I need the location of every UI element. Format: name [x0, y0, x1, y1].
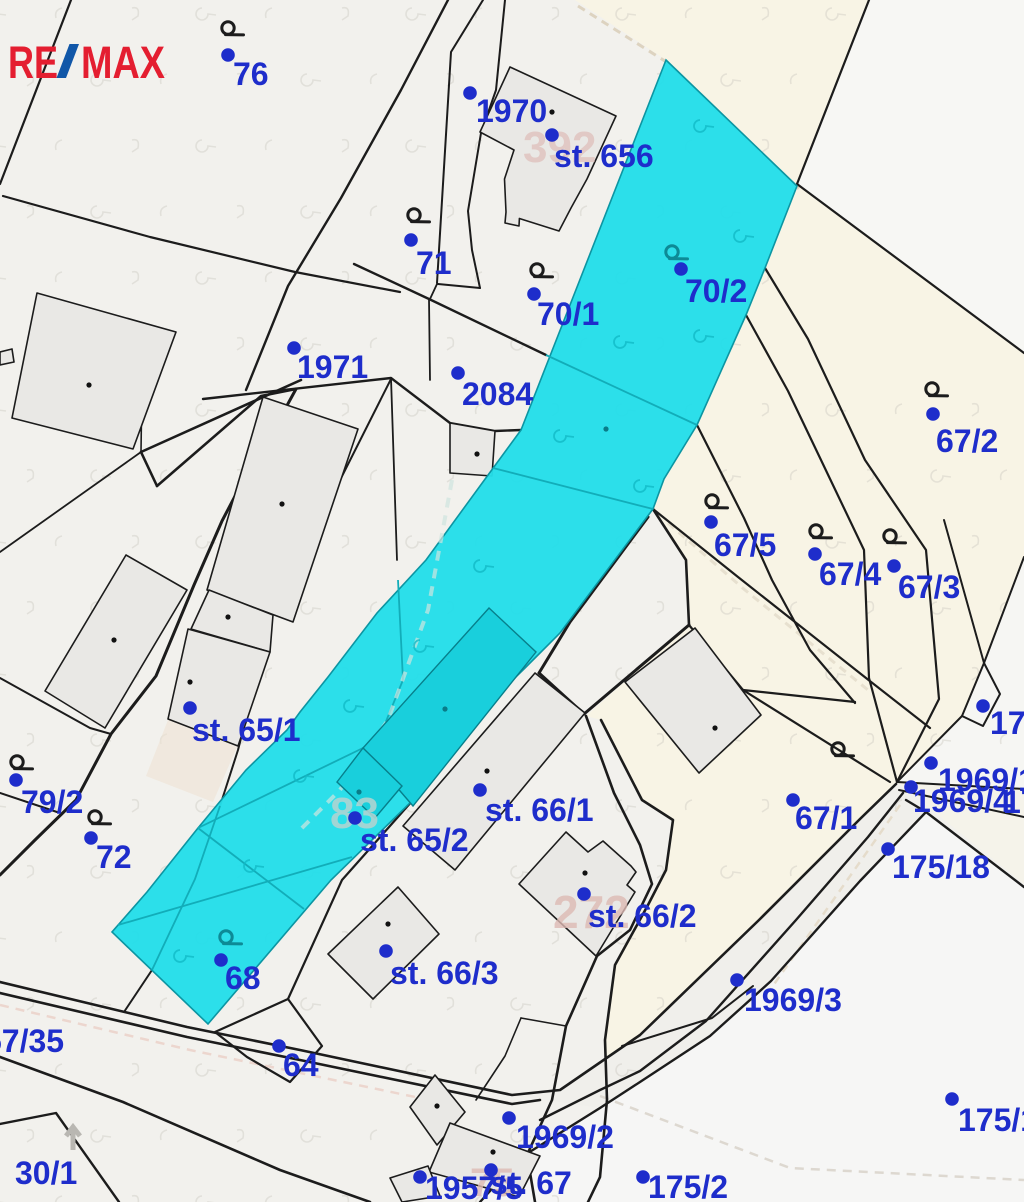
svg-text:1969/4: 1969/4 — [913, 783, 1011, 819]
svg-text:RE: RE — [8, 37, 58, 88]
svg-text:175/1: 175/1 — [958, 1102, 1024, 1138]
svg-text:70/1: 70/1 — [537, 296, 599, 332]
svg-text:64: 64 — [283, 1047, 319, 1083]
svg-text:1971: 1971 — [297, 349, 368, 385]
svg-text:st. 656: st. 656 — [554, 138, 654, 174]
svg-text:175/2: 175/2 — [648, 1169, 728, 1202]
svg-text:st. 66/3: st. 66/3 — [390, 955, 499, 991]
svg-text:67/2: 67/2 — [936, 423, 998, 459]
svg-text:1969/2: 1969/2 — [516, 1119, 614, 1155]
svg-text:st. 67: st. 67 — [490, 1165, 572, 1201]
svg-text:72: 72 — [96, 839, 132, 875]
svg-text:st. 66/2: st. 66/2 — [588, 898, 697, 934]
svg-text:175/18: 175/18 — [892, 849, 990, 885]
svg-text:76: 76 — [233, 56, 269, 92]
svg-text:30/1: 30/1 — [15, 1155, 77, 1191]
svg-text:68: 68 — [225, 960, 261, 996]
svg-text:175: 175 — [990, 705, 1024, 741]
svg-text:57/35: 57/35 — [0, 1023, 64, 1059]
svg-text:67/1: 67/1 — [795, 800, 857, 836]
svg-text:79/2: 79/2 — [21, 784, 83, 820]
svg-text:67/5: 67/5 — [714, 527, 776, 563]
svg-text:67/3: 67/3 — [898, 569, 960, 605]
svg-text:17: 17 — [1003, 784, 1024, 820]
svg-text:70/2: 70/2 — [685, 273, 747, 309]
svg-text:1969/3: 1969/3 — [744, 982, 842, 1018]
svg-text:st. 65/1: st. 65/1 — [192, 712, 301, 748]
svg-text:st. 65/2: st. 65/2 — [360, 822, 469, 858]
svg-text:2084: 2084 — [462, 376, 533, 412]
svg-text:MAX: MAX — [81, 37, 165, 88]
svg-text:67/4: 67/4 — [819, 556, 881, 592]
svg-text:1970: 1970 — [476, 93, 547, 129]
svg-text:st. 66/1: st. 66/1 — [485, 792, 594, 828]
svg-text:71: 71 — [416, 245, 452, 281]
